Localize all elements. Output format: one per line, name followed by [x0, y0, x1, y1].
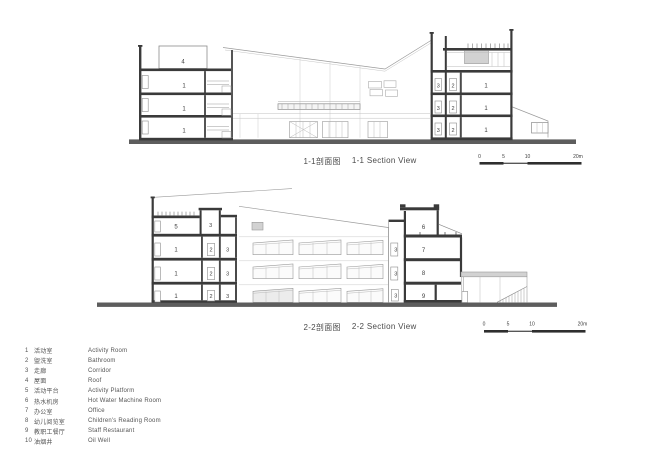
section-1-title: 1-1剖面图 1-1 Section View	[235, 156, 485, 167]
room-label: 6	[422, 225, 426, 231]
legend-en: Bathroom	[88, 358, 225, 364]
s1-background-elevation	[223, 40, 433, 138]
room-label: 9	[422, 294, 426, 300]
scale-tick: 5	[502, 154, 505, 160]
legend-row: 4 屋面 Roof	[25, 376, 225, 386]
room-label: 1	[174, 248, 178, 254]
window	[142, 99, 148, 112]
legend-row: 1 活动室 Activity Room	[25, 346, 225, 356]
legend-row: 5 活动平台 Activity Platform	[25, 386, 225, 396]
scale-tick: 20m	[578, 322, 588, 328]
window	[155, 221, 161, 232]
section-2-title-zh: 2-2剖面图	[303, 322, 340, 333]
legend-zh: 幼儿阅览室	[34, 417, 88, 426]
scale-tick: 5	[507, 322, 510, 328]
legend-row: 9 教职工餐厅 Staff Restaurant	[25, 426, 225, 436]
legend-zh: 油烟井	[34, 437, 88, 446]
legend-zh: 办公室	[34, 407, 88, 416]
legend-row: 6 热水机房 Hot Water Machine Room	[25, 396, 225, 406]
legend-num: 9	[25, 428, 34, 434]
s2-background-elevation	[154, 189, 389, 303]
legend-zh: 走廊	[34, 366, 88, 375]
room-label: 1	[174, 294, 178, 300]
legend-zh: 屋面	[34, 376, 88, 385]
s1-left-block: 4 1 1 1	[138, 45, 233, 140]
section-2-drawing: 5 3 1 1 1 2 2 2 3 3 3 3 3 3	[97, 189, 587, 333]
window	[155, 243, 161, 256]
scale-bar-2: 0 5 10 20m	[483, 322, 588, 333]
architectural-sheet: 4 1 1 1	[0, 0, 650, 459]
door	[462, 292, 468, 303]
legend-en: Staff Restaurant	[88, 428, 225, 434]
legend-num: 1	[25, 348, 34, 354]
section-2-title: 2-2剖面图 2-2 Section View	[235, 322, 485, 333]
section-1-drawing: 4 1 1 1	[129, 29, 583, 165]
legend-zh: 活动平台	[34, 386, 88, 395]
roof-railing	[468, 44, 508, 49]
legend-num: 7	[25, 408, 34, 414]
legend-row: 10 油烟井 Oil Well	[25, 436, 225, 446]
room-label: 3	[209, 223, 212, 229]
room-label: 2	[209, 248, 212, 254]
s1-right-block: 3 3 3 2 2 2 1 1 1	[430, 29, 548, 140]
platform-railing	[158, 212, 194, 216]
section-1-title-en: 1-1 Section View	[352, 156, 417, 167]
scale-bar-1: 0 5 10 20m	[478, 154, 583, 165]
scale-tick: 20m	[573, 154, 583, 160]
s2-canopy	[461, 272, 527, 303]
legend-zh: 教职工餐厅	[34, 427, 88, 436]
room-label: 3	[437, 106, 440, 112]
section-2-title-en: 2-2 Section View	[352, 322, 417, 333]
legend-num: 10	[25, 438, 34, 444]
room-label: 3	[437, 84, 440, 90]
room-label: 3	[226, 272, 229, 278]
legend-zh: 活动室	[34, 346, 88, 355]
room-label: 3	[437, 128, 440, 134]
legend-en: Activity Platform	[88, 388, 225, 394]
legend-en: Roof	[88, 378, 225, 384]
room-label: 2	[451, 106, 454, 112]
legend-en: Activity Room	[88, 348, 225, 354]
legend-zh: 盥洗室	[34, 356, 88, 365]
room-label: 1	[484, 128, 488, 134]
s2-right-block: 3 3 3 6 7 8 9	[389, 204, 528, 302]
room-label: 1	[174, 272, 178, 278]
legend-en: Corridor	[88, 368, 225, 374]
room-label: 3	[394, 272, 397, 278]
room-label: 3	[226, 248, 229, 254]
legend-row: 8 幼儿阅览室 Children's Reading Room	[25, 416, 225, 426]
room-label: 1	[484, 106, 488, 112]
room-label: 8	[422, 271, 426, 277]
s2-left-block: 5 3 1 1 1 2 2 2 3 3 3	[151, 197, 237, 303]
room-label: 5	[174, 225, 178, 231]
legend-en: Children's Reading Room	[88, 418, 225, 424]
room-label: 3	[394, 294, 397, 300]
legend-en: Office	[88, 408, 225, 414]
room-label: 3	[394, 248, 397, 254]
legend: 1 活动室 Activity Room 2 盥洗室 Bathroom 3 走廊 …	[25, 346, 225, 447]
room-label: 1	[182, 107, 186, 113]
window	[142, 76, 148, 89]
window	[155, 267, 161, 280]
window	[142, 121, 148, 134]
room-label: 7	[422, 248, 426, 254]
legend-num: 6	[25, 398, 34, 404]
legend-en: Hot Water Machine Room	[88, 398, 225, 404]
legend-en: Oil Well	[88, 438, 225, 444]
rooftop-vent	[252, 222, 263, 230]
window	[155, 291, 161, 302]
room-label: 1	[484, 84, 488, 90]
scale-tick: 10	[529, 322, 535, 328]
s1-annex	[513, 107, 549, 138]
legend-num: 8	[25, 418, 34, 424]
room-label: 2	[451, 84, 454, 90]
room-label: 1	[182, 84, 186, 90]
legend-row: 2 盥洗室 Bathroom	[25, 356, 225, 366]
legend-num: 2	[25, 358, 34, 364]
room-label: 3	[226, 294, 229, 300]
legend-num: 4	[25, 378, 34, 384]
room-label: 1	[182, 129, 186, 135]
legend-num: 3	[25, 368, 34, 374]
legend-row: 7 办公室 Office	[25, 406, 225, 416]
room-label: 2	[209, 294, 212, 300]
stair-marks	[207, 81, 229, 130]
legend-num: 5	[25, 388, 34, 394]
section-1-title-zh: 1-1剖面图	[303, 156, 340, 167]
scale-tick: 10	[525, 154, 531, 160]
legend-row: 3 走廊 Corridor	[25, 366, 225, 376]
legend-zh: 热水机房	[34, 397, 88, 406]
room-label: 2	[451, 128, 454, 134]
room-label: 2	[209, 272, 212, 278]
ground-line-2	[97, 303, 557, 307]
